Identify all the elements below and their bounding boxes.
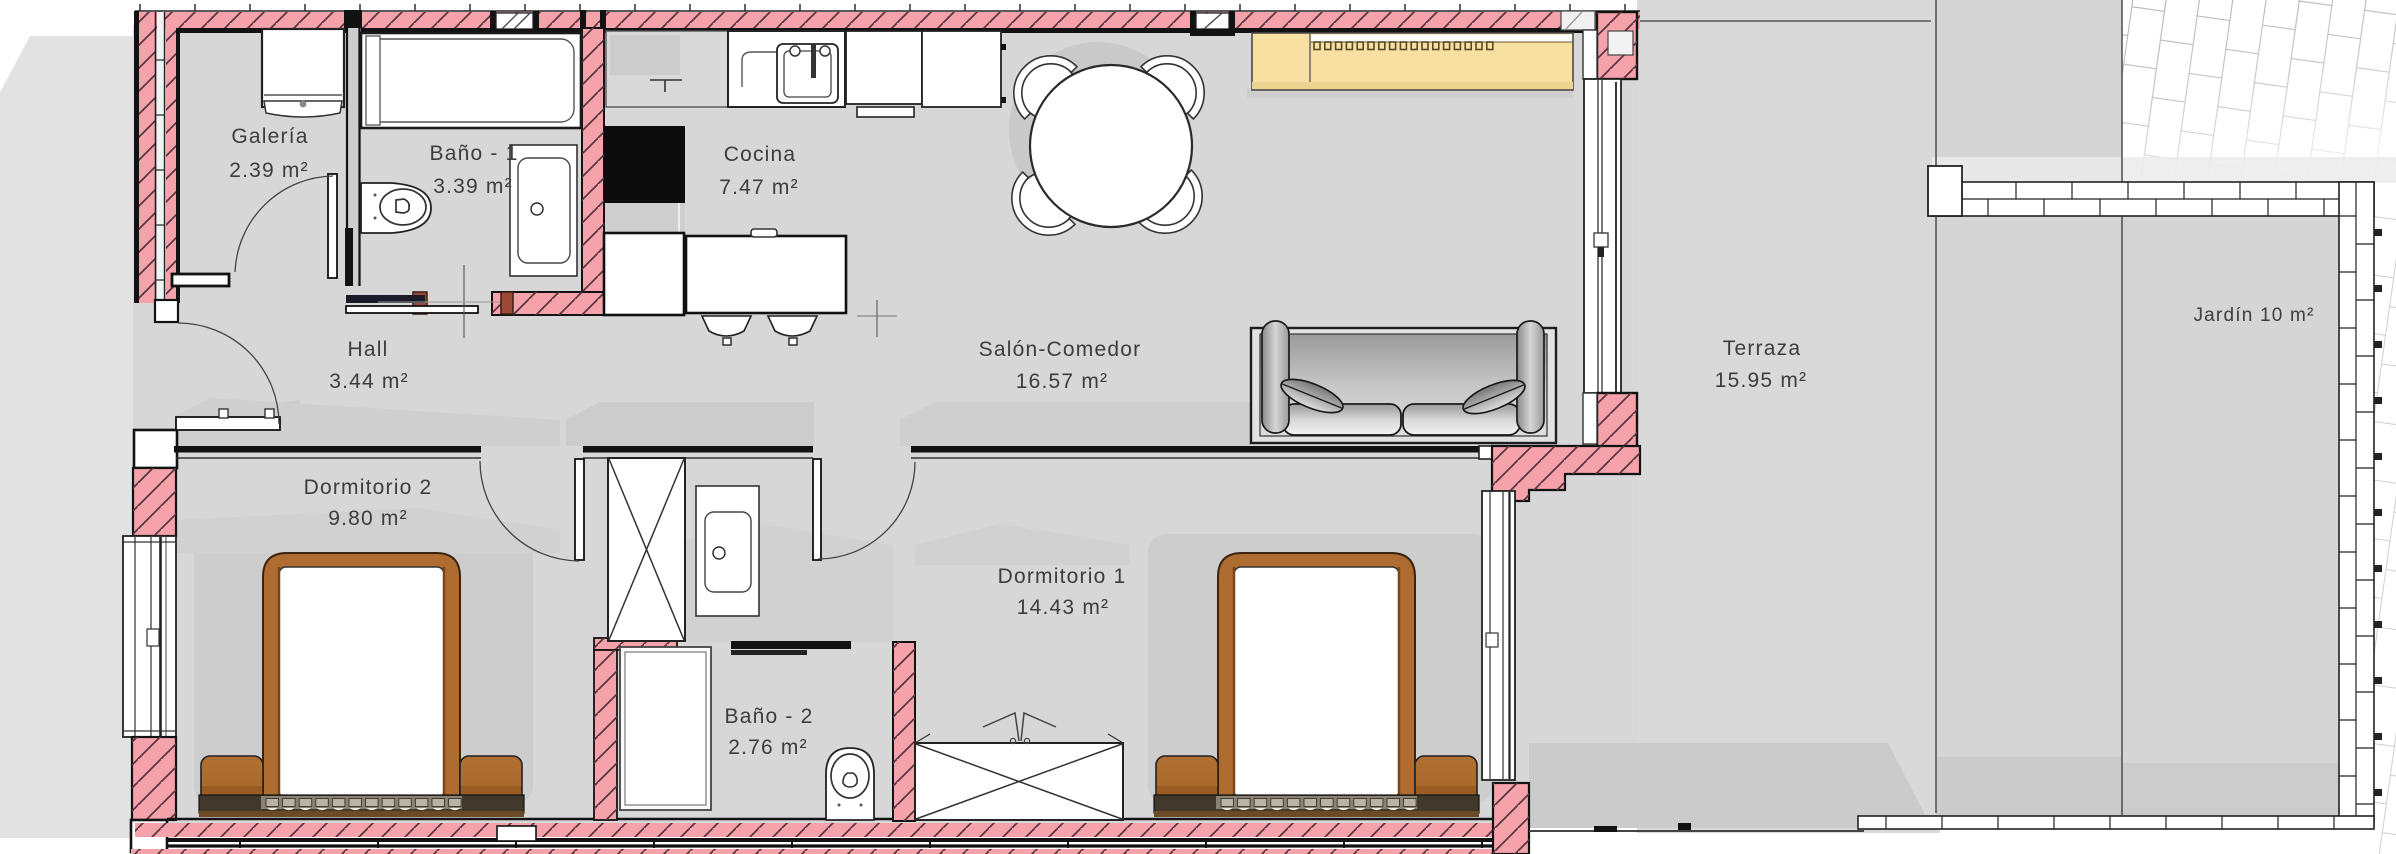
svg-text:Galería: Galería (231, 125, 308, 148)
svg-text:2.76 m²: 2.76 m² (728, 736, 808, 759)
svg-text:2.39 m²: 2.39 m² (229, 159, 309, 182)
svg-text:16.57 m²: 16.57 m² (1016, 370, 1108, 393)
svg-text:15.95 m²: 15.95 m² (1715, 369, 1807, 392)
svg-text:14.43 m²: 14.43 m² (1017, 596, 1109, 619)
svg-text:9.80 m²: 9.80 m² (328, 507, 408, 530)
svg-text:Terraza: Terraza (1723, 337, 1801, 360)
svg-text:Dormitorio 2: Dormitorio 2 (304, 476, 433, 499)
svg-text:Jardín 10 m²: Jardín 10 m² (2193, 305, 2314, 326)
svg-text:Baño - 2: Baño - 2 (725, 705, 814, 728)
svg-text:Salón-Comedor: Salón-Comedor (979, 338, 1142, 361)
svg-text:3.39 m²: 3.39 m² (433, 175, 513, 198)
svg-text:7.47 m²: 7.47 m² (719, 176, 799, 199)
svg-text:Dormitorio 1: Dormitorio 1 (998, 565, 1127, 588)
svg-text:Cocina: Cocina (724, 143, 797, 166)
svg-text:Baño - 1: Baño - 1 (430, 142, 519, 165)
svg-text:3.44 m²: 3.44 m² (329, 370, 409, 393)
svg-text:Hall: Hall (348, 338, 389, 361)
